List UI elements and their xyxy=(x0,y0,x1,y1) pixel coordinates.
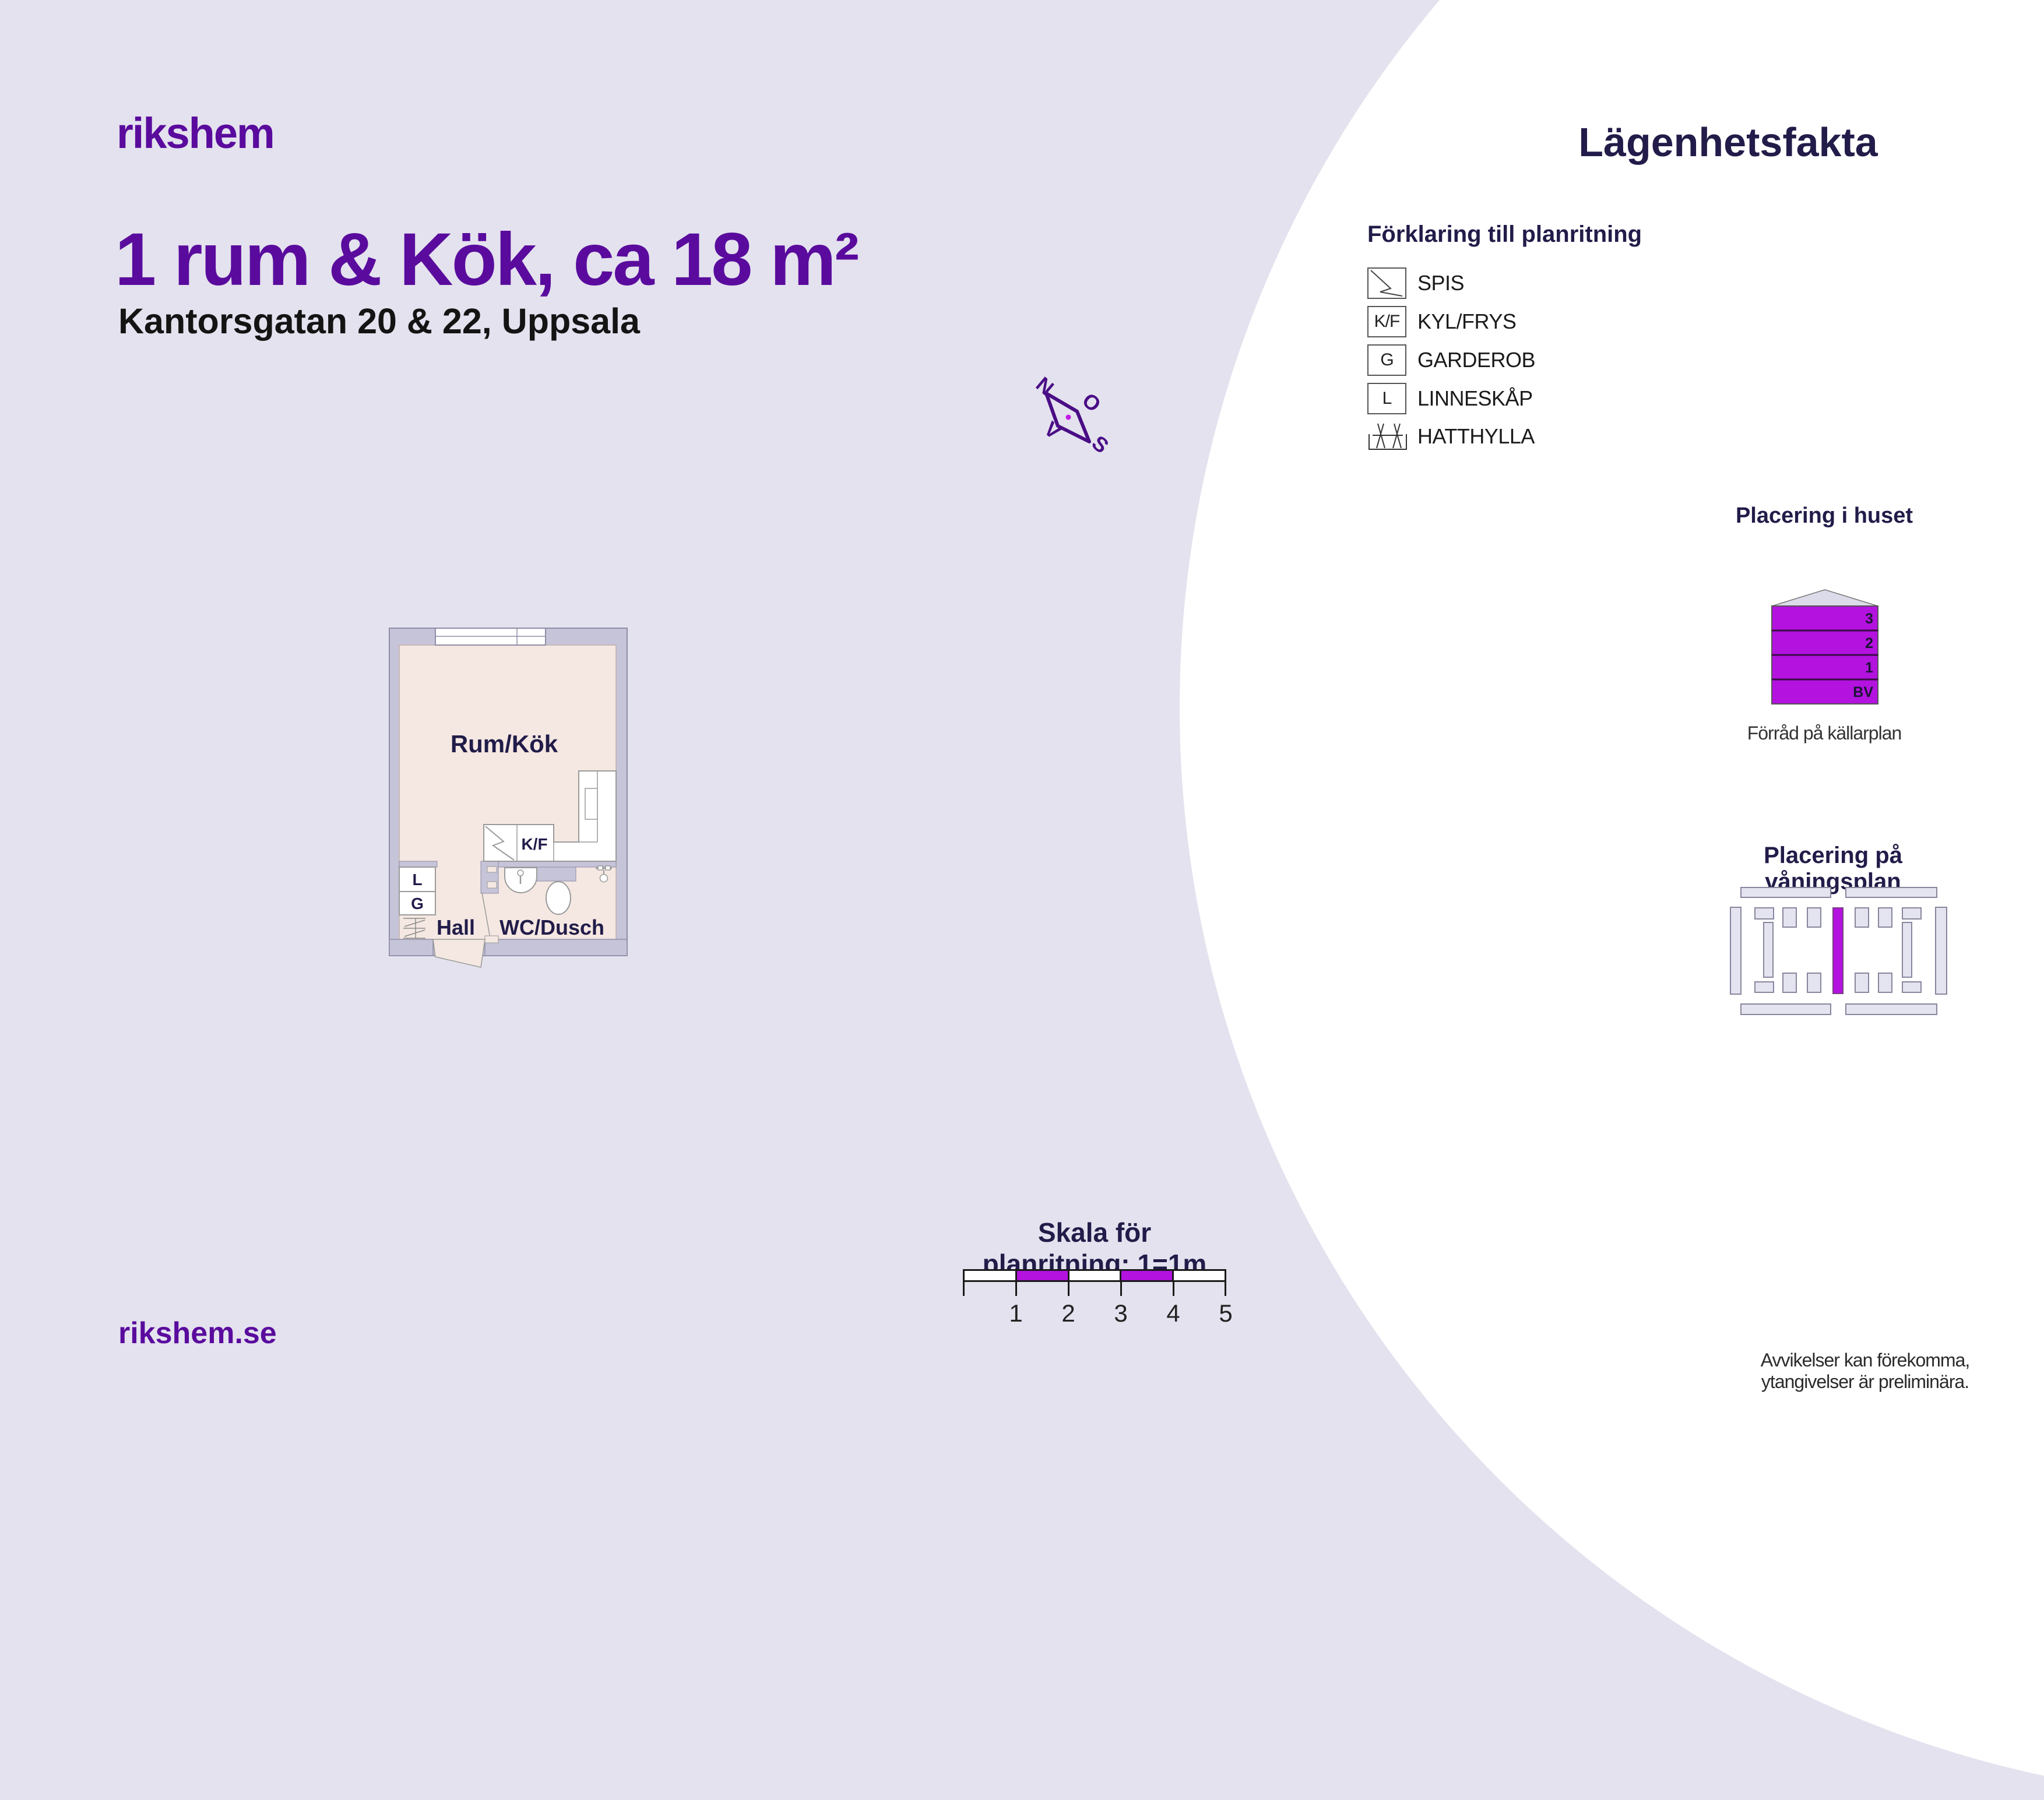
diagram-block xyxy=(1754,981,1774,993)
diagram-block xyxy=(1782,973,1797,993)
kitchen-sink xyxy=(585,788,597,819)
legend-label-spis: SPIS xyxy=(1417,267,1464,299)
door-rebate xyxy=(485,936,498,943)
scale-number-4: 4 xyxy=(1156,1299,1191,1327)
toilet xyxy=(546,882,571,914)
page-title: 1 rum & Kök, ca 18 m² xyxy=(115,217,857,302)
building-placement-heading: Placering i huset xyxy=(1719,503,1929,529)
diagram-block xyxy=(1845,887,1937,898)
scale-number-1: 1 xyxy=(998,1299,1033,1327)
label-kf: K/F xyxy=(521,835,547,853)
diagram-block xyxy=(1902,981,1922,993)
website-link: rikshem.se xyxy=(118,1316,277,1351)
facts-heading: Lägenhetsfakta xyxy=(1574,119,1883,165)
floor-label-2: 2 xyxy=(1865,635,1873,651)
diagram-block xyxy=(1807,907,1821,928)
building-icon: 3 2 1 BV xyxy=(1766,583,1884,708)
white-circle-background xyxy=(1180,0,2044,1800)
room-label-hall: Hall xyxy=(437,915,475,939)
compass-south-label: S xyxy=(1088,431,1114,458)
window xyxy=(435,628,546,645)
wc-door-post xyxy=(481,861,498,893)
bottom-wall-right xyxy=(485,939,627,956)
compass-west-label: V xyxy=(1040,417,1066,444)
legend-label-hatthylla: HATTHYLLA xyxy=(1417,421,1535,452)
diagram-block xyxy=(1740,887,1831,898)
scale-segment xyxy=(1174,1271,1225,1280)
floor-label-bv: BV xyxy=(1853,684,1873,700)
g-symbol: G xyxy=(1367,344,1406,376)
address-subtitle: Kantorsgatan 20 & 22, Uppsala xyxy=(118,301,640,341)
disclaimer-line-2: ytangivelser är preliminära. xyxy=(1760,1371,1970,1393)
bottom-wall-left xyxy=(389,939,433,956)
floor-label-1: 1 xyxy=(1865,660,1873,676)
diagram-block xyxy=(1845,1003,1937,1015)
scale-tick xyxy=(1120,1281,1122,1296)
scale-number-2: 2 xyxy=(1051,1299,1086,1327)
diagram-block xyxy=(1935,907,1947,995)
legend-label-linneskap: LINNESKÅP xyxy=(1417,383,1533,414)
room-label-wc: WC/Dusch xyxy=(499,915,604,939)
diagram-block xyxy=(1855,907,1869,928)
diagram-block xyxy=(1902,922,1912,978)
kf-symbol: K/F xyxy=(1367,306,1406,337)
diagram-block xyxy=(1878,973,1892,993)
diagram-block xyxy=(1730,907,1742,995)
diagram-block xyxy=(1782,907,1797,928)
scale-tick xyxy=(1068,1281,1070,1296)
disclaimer-line-1: Avvikelser kan förekomma, xyxy=(1760,1350,1970,1371)
floor-label-3: 3 xyxy=(1865,611,1873,627)
scale-tick xyxy=(1225,1281,1226,1296)
scale-bar xyxy=(963,1269,1226,1282)
label-l: L xyxy=(412,871,422,889)
diagram-block xyxy=(1754,907,1774,920)
l-symbol: L xyxy=(1367,383,1406,414)
scale-segment xyxy=(965,1271,1017,1280)
compass-east-label: O xyxy=(1078,388,1106,417)
compass-icon: N O S V xyxy=(1014,367,1142,478)
diagram-block xyxy=(1855,973,1869,993)
label-g: G xyxy=(411,894,424,913)
room-label-main: Rum/Kök xyxy=(451,730,558,758)
rikshem-logo: rikshem xyxy=(117,108,274,158)
scale-number-5: 5 xyxy=(1208,1299,1243,1327)
diagram-block xyxy=(1740,1003,1831,1015)
diagram-block xyxy=(1763,922,1774,978)
legend-label-kylfrys: KYL/FRYS xyxy=(1417,306,1516,337)
highlighted-apartment-block xyxy=(1832,907,1844,994)
legend-heading: Förklaring till planritning xyxy=(1367,221,1642,248)
closet-wall xyxy=(399,861,437,867)
entrance-door-leaf xyxy=(433,939,485,967)
storage-note: Förråd på källarplan xyxy=(1719,723,1929,744)
spis-icon xyxy=(1367,267,1406,299)
scale-number-3: 3 xyxy=(1103,1299,1138,1327)
compass-north-label: N xyxy=(1032,372,1058,400)
scale-tick xyxy=(1173,1281,1174,1296)
diagram-block xyxy=(1807,973,1821,993)
legend-label-garderob: GARDEROB xyxy=(1417,344,1535,376)
scale-segment xyxy=(1070,1271,1122,1280)
scale-segment xyxy=(1121,1271,1174,1280)
scale-tick xyxy=(1015,1281,1017,1296)
disclaimer: Avvikelser kan förekomma, ytangivelser ä… xyxy=(1760,1350,1970,1393)
scale-tick xyxy=(963,1281,965,1296)
scale-segment xyxy=(1017,1271,1070,1280)
floor-plan: Rum/Kök K/F L G Hall WC/Dusch xyxy=(385,618,635,985)
diagram-block xyxy=(1902,907,1922,920)
hatthylla-legend-icon xyxy=(1367,421,1408,452)
diagram-block xyxy=(1878,907,1892,928)
wc-wall-chunk xyxy=(536,867,576,881)
